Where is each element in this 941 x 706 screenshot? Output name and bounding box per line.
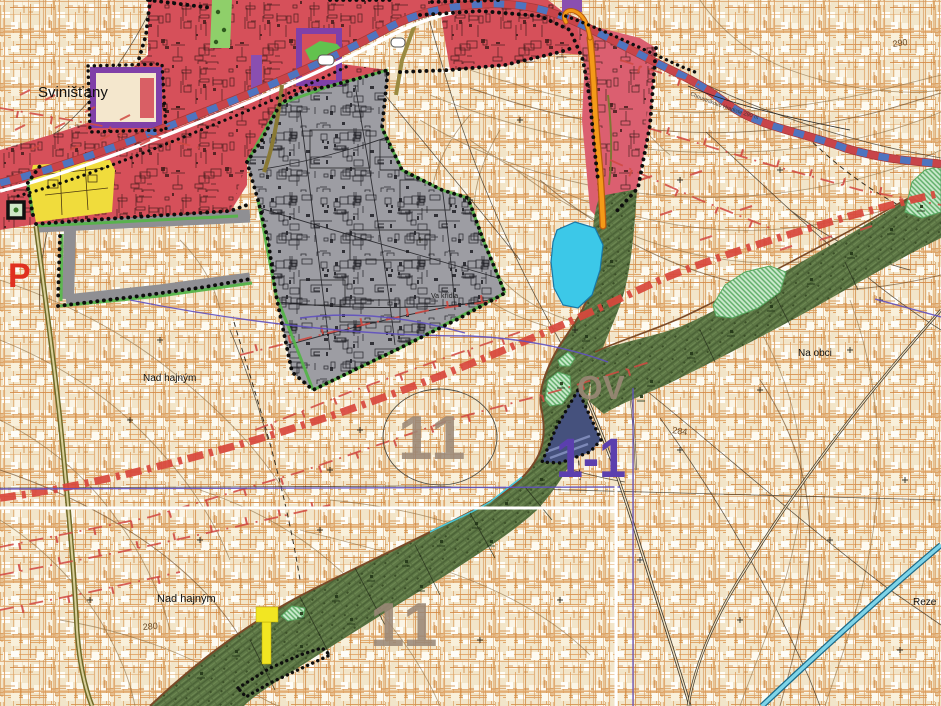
- svg-text:284: 284: [672, 425, 688, 437]
- svg-text:11: 11: [398, 404, 468, 473]
- svg-text:Nad hajným: Nad hajným: [157, 593, 216, 605]
- svg-text:290: 290: [892, 37, 908, 49]
- svg-text:Svinišťany: Svinišťany: [38, 84, 108, 101]
- svg-text:Na obci: Na obci: [798, 348, 832, 359]
- svg-text:OV: OV: [577, 369, 625, 406]
- svg-text:Nad hajným: Nad hajným: [143, 373, 196, 384]
- svg-text:Reze: Reze: [913, 597, 937, 608]
- svg-text:11: 11: [370, 591, 440, 660]
- svg-text:Va křídla: Va křídla: [431, 293, 458, 300]
- svg-text:280: 280: [142, 621, 158, 632]
- svg-text:P: P: [8, 257, 31, 295]
- svg-text:1-1: 1-1: [556, 426, 626, 489]
